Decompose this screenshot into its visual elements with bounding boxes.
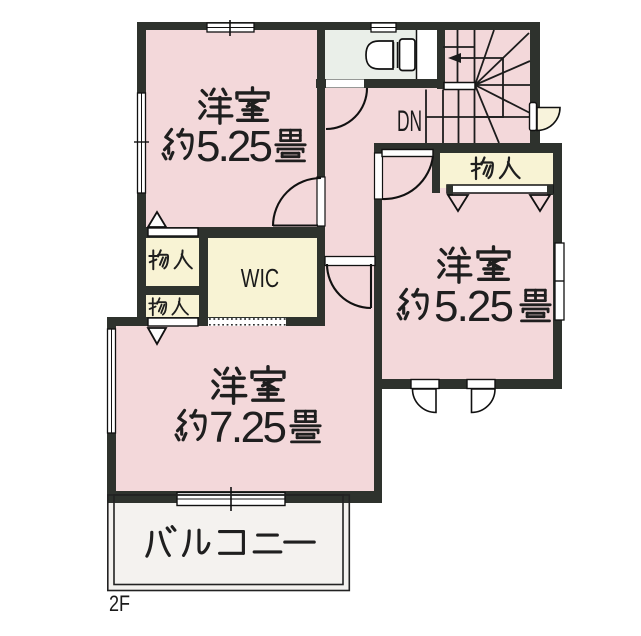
- svg-text:7.25: 7.25: [209, 403, 287, 452]
- svg-text:5.25: 5.25: [434, 282, 514, 331]
- svg-text:WIC: WIC: [241, 263, 279, 292]
- svg-text:5.25: 5.25: [196, 122, 273, 171]
- svg-text:2F: 2F: [109, 592, 130, 616]
- svg-text:DN: DN: [397, 105, 422, 138]
